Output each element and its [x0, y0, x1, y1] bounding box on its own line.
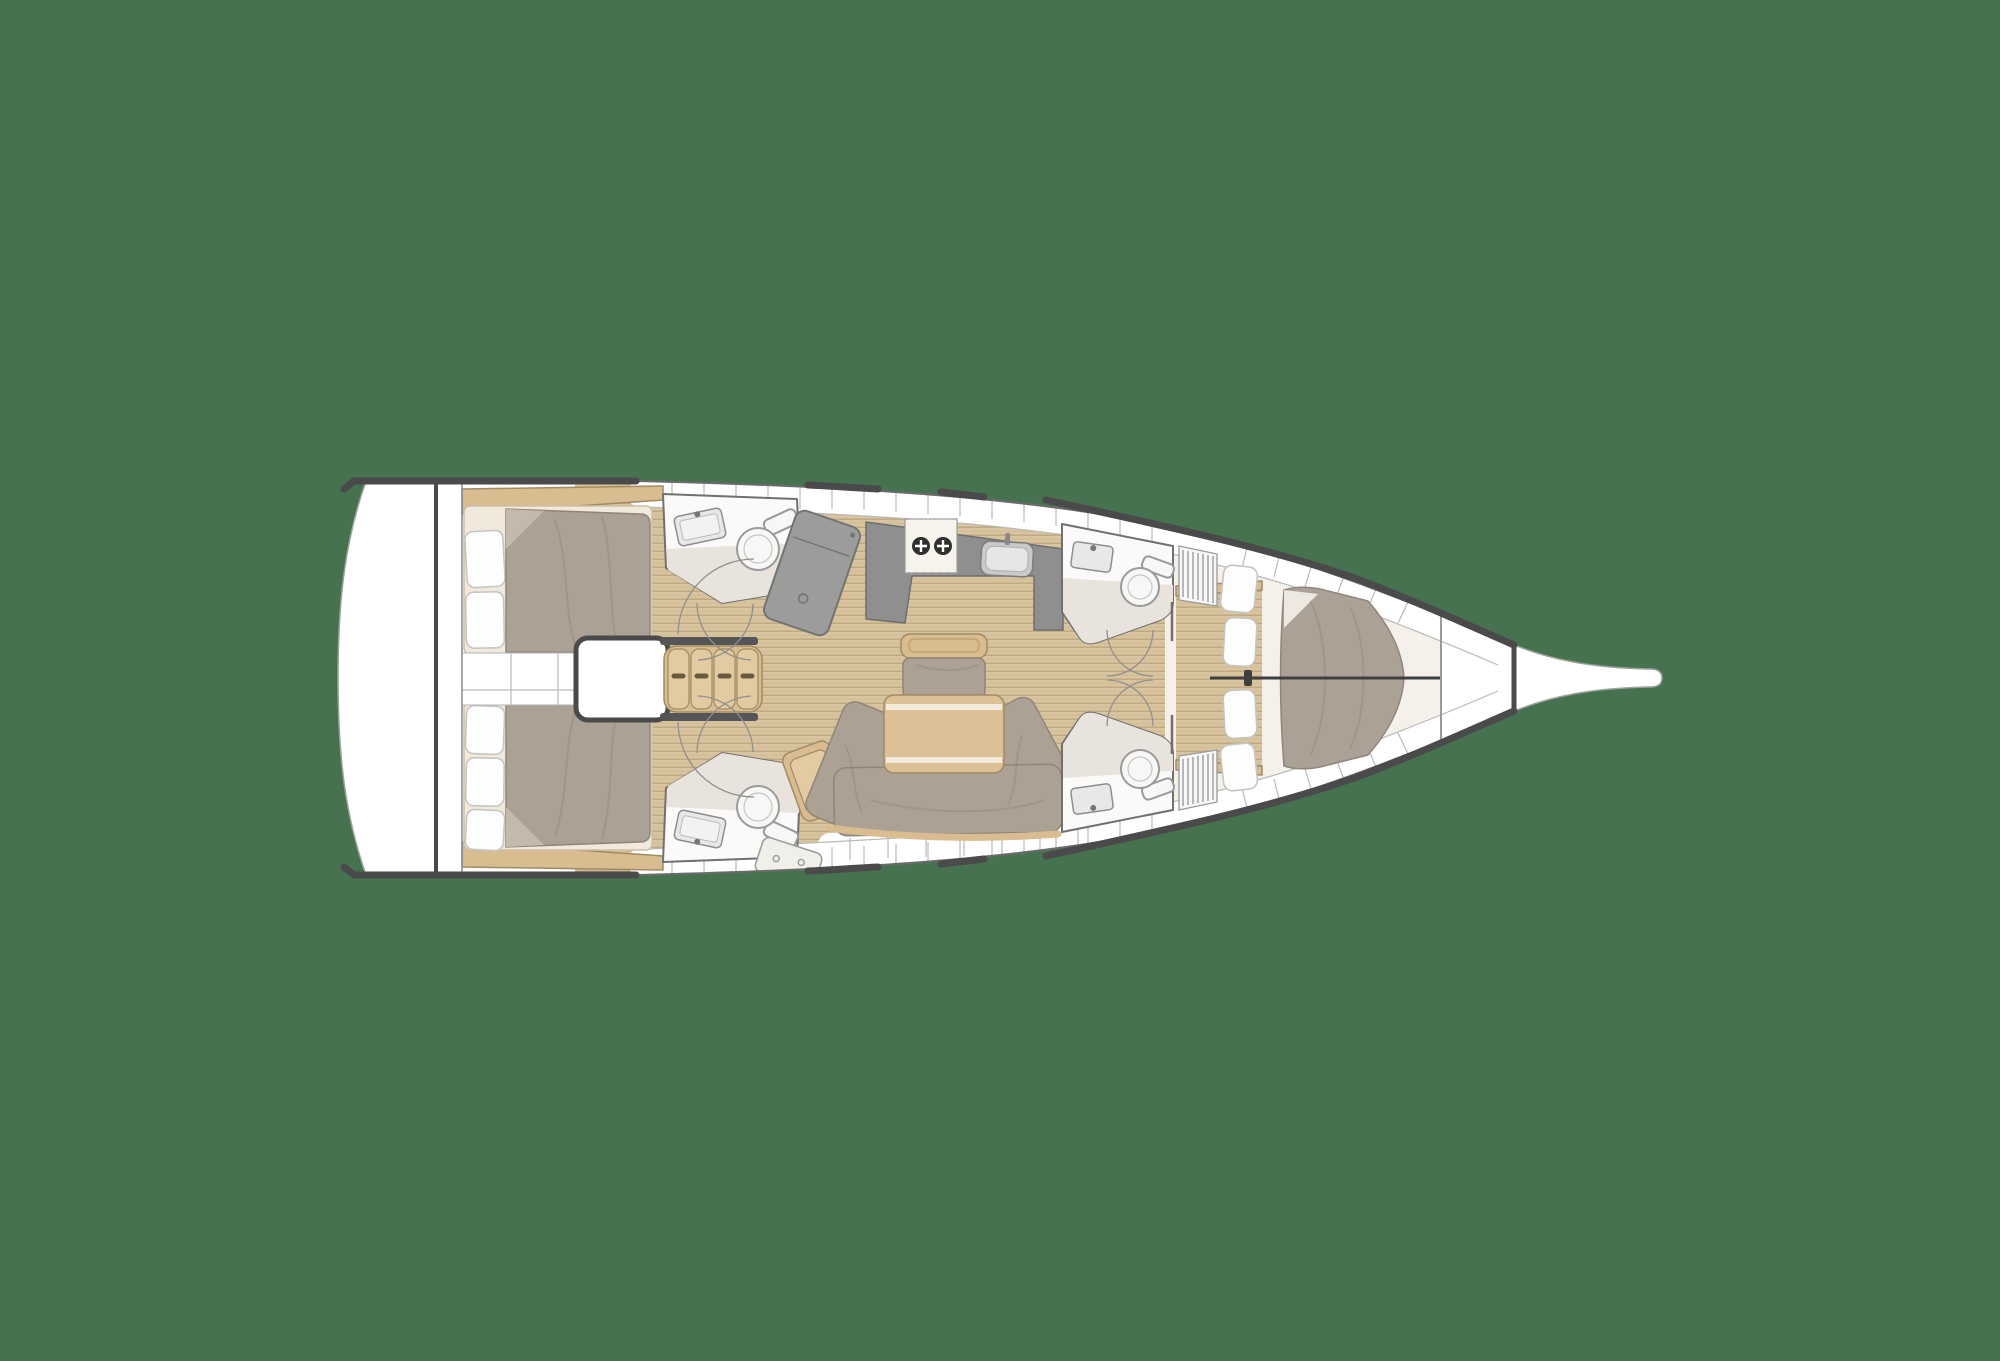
faucet: [1005, 533, 1011, 545]
table-leaf-seam: [886, 757, 1002, 763]
pillow: [465, 809, 505, 851]
aft-cabin-starboard: [462, 702, 663, 870]
sofa-bottom: [833, 764, 1062, 836]
floor-plan-canvas: [0, 0, 2000, 1361]
pillow: [465, 705, 505, 754]
corridor-lockers: [462, 653, 576, 705]
duvet: [506, 509, 650, 653]
deck-hatch-bar: [941, 859, 984, 864]
pillow: [1220, 742, 1259, 791]
pillow: [466, 592, 505, 649]
bench-cushion: [903, 658, 985, 698]
stair-tread: [668, 649, 689, 709]
pillow: [1223, 617, 1257, 667]
deck-hatch-bar: [808, 485, 878, 489]
bench-back: [901, 634, 987, 658]
burner: [912, 537, 930, 555]
pillow: [1223, 689, 1257, 739]
deck-hatch-bar: [808, 867, 878, 871]
burner: [934, 537, 952, 555]
pillow: [465, 530, 506, 588]
engine-compartment: [576, 638, 668, 720]
deck-hatch-bar: [941, 492, 984, 497]
boat-floor-plan: [0, 0, 2000, 1361]
pillow: [466, 758, 505, 807]
duvet: [506, 703, 650, 847]
table-leaf-seam: [886, 704, 1002, 710]
pillow: [1220, 564, 1259, 613]
aft-cabin-port: [462, 486, 663, 654]
